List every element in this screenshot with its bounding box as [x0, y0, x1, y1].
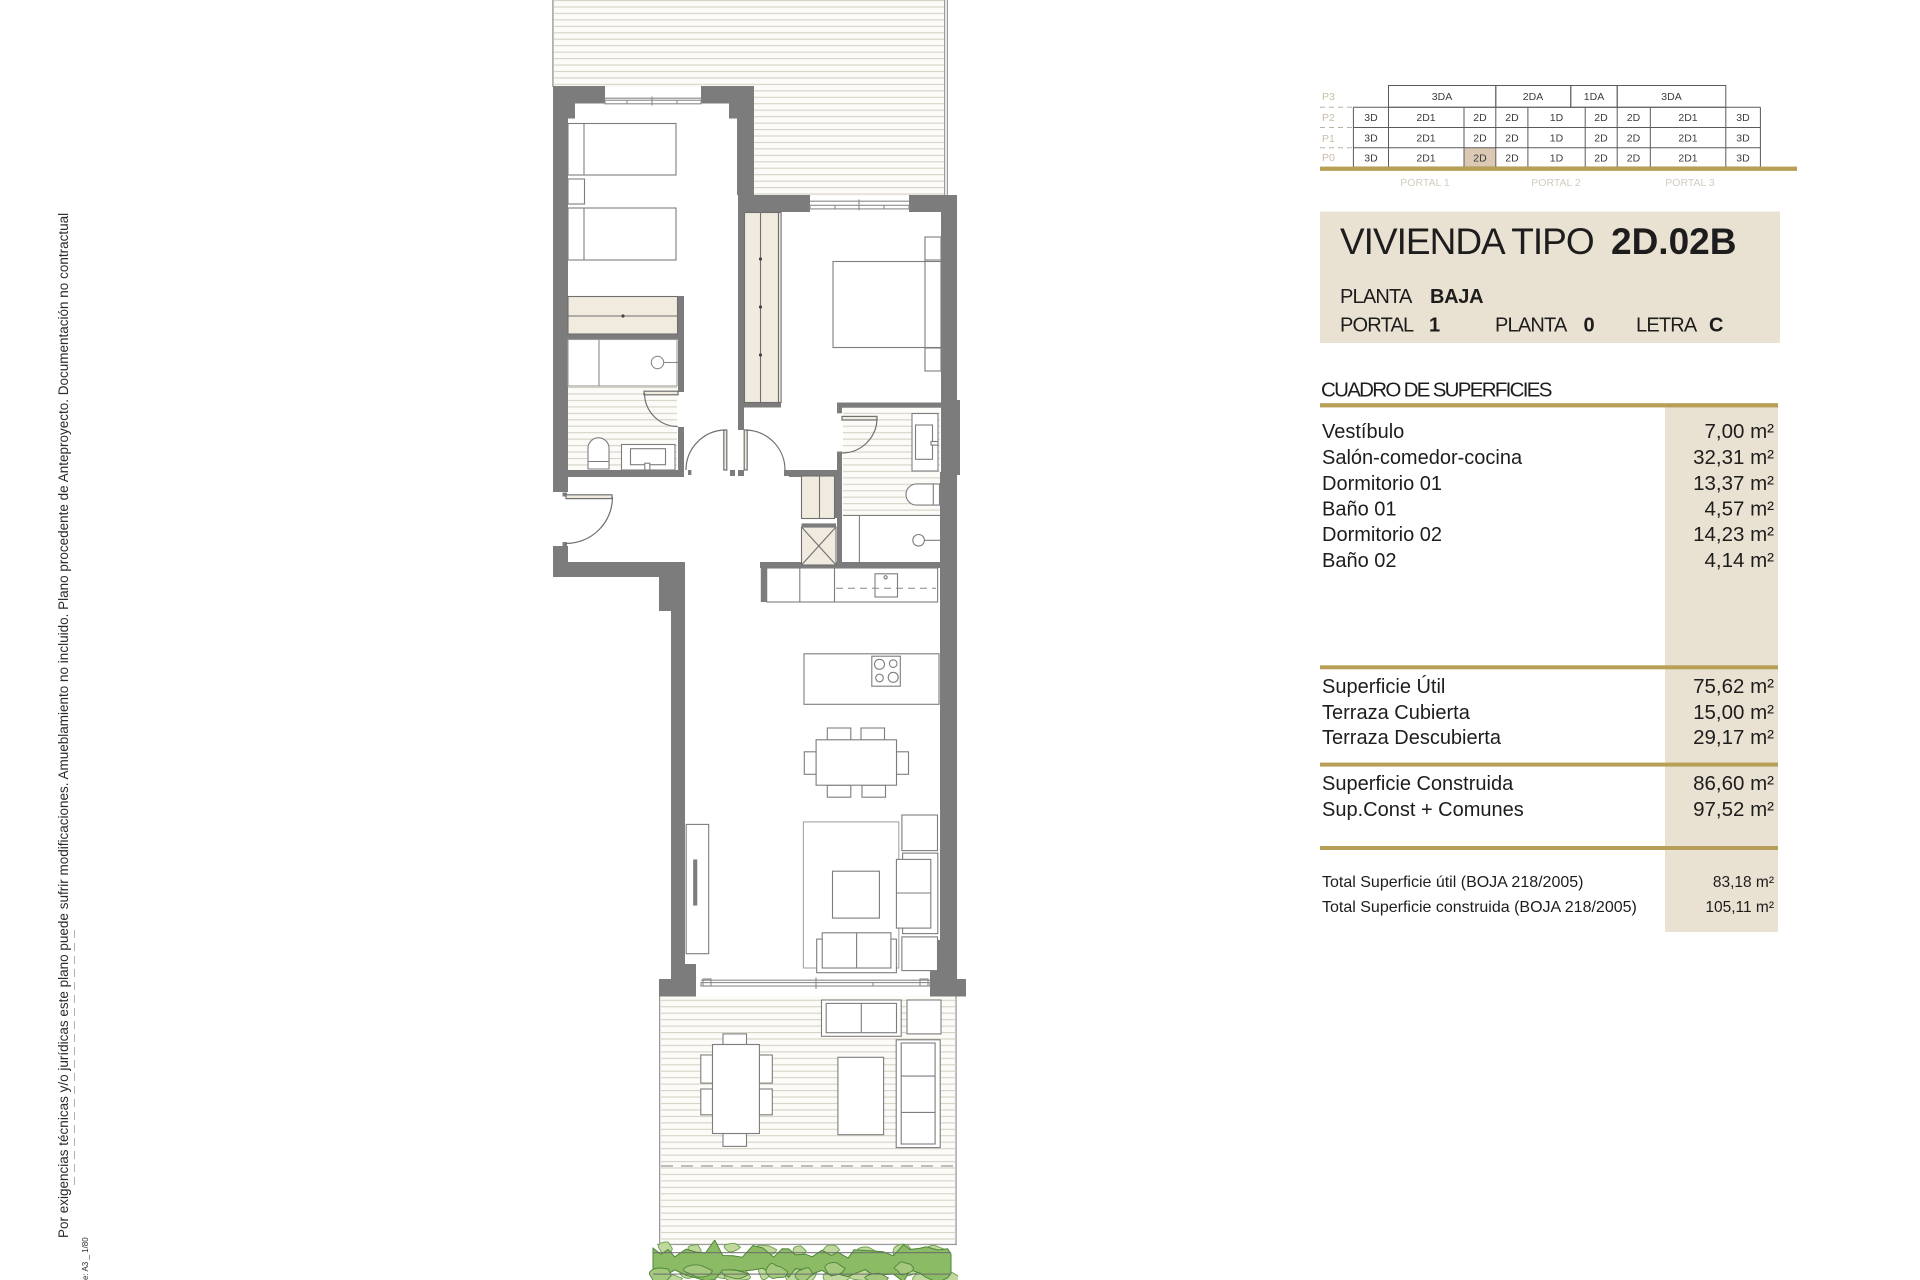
- svg-text:1D: 1D: [1550, 112, 1564, 124]
- svg-text:2D1: 2D1: [1678, 133, 1697, 145]
- svg-text:2D: 2D: [1594, 133, 1608, 145]
- svg-text:3D: 3D: [1364, 133, 1378, 145]
- svg-text:2D: 2D: [1473, 153, 1487, 165]
- svg-text:2D: 2D: [1627, 133, 1641, 145]
- svg-text:2D: 2D: [1627, 112, 1641, 124]
- svg-text:2D: 2D: [1505, 153, 1519, 165]
- svg-text:32,31 m²: 32,31 m²: [1693, 446, 1774, 469]
- svg-text:2D1: 2D1: [1678, 112, 1697, 124]
- svg-text:Terraza Descubierta: Terraza Descubierta: [1322, 727, 1502, 749]
- svg-text:3D: 3D: [1736, 153, 1750, 165]
- svg-text:1DA: 1DA: [1584, 91, 1604, 103]
- svg-text:Vestíbulo: Vestíbulo: [1322, 421, 1404, 443]
- svg-text:2D: 2D: [1505, 133, 1519, 145]
- svg-text:2D: 2D: [1594, 112, 1608, 124]
- svg-text:Superficie Útil: Superficie Útil: [1322, 675, 1445, 698]
- svg-text:14,23 m²: 14,23 m²: [1693, 523, 1774, 546]
- svg-text:2D: 2D: [1594, 153, 1608, 165]
- svg-text:2D: 2D: [1473, 133, 1487, 145]
- svg-text:PLANTA: PLANTA: [1495, 315, 1568, 337]
- svg-text:1D: 1D: [1550, 153, 1564, 165]
- svg-text:3DA: 3DA: [1432, 91, 1452, 103]
- svg-text:2D1: 2D1: [1416, 112, 1435, 124]
- svg-text:3D: 3D: [1364, 153, 1378, 165]
- svg-text:2D: 2D: [1505, 112, 1519, 124]
- svg-text:29,17 m²: 29,17 m²: [1693, 726, 1774, 749]
- svg-text:3D: 3D: [1736, 133, 1750, 145]
- svg-text:PLANTA: PLANTA: [1340, 286, 1413, 308]
- svg-text:Sup.Const + Comunes: Sup.Const + Comunes: [1322, 799, 1524, 821]
- svg-text:Baño 01: Baño 01: [1322, 499, 1397, 521]
- svg-text:Por exigencias técnicas y/o ju: Por exigencias técnicas y/o jurídicas es…: [56, 213, 71, 1238]
- svg-text:3D: 3D: [1364, 112, 1378, 124]
- svg-text:4,14 m²: 4,14 m²: [1705, 549, 1775, 572]
- svg-text:15,00 m²: 15,00 m²: [1693, 701, 1774, 724]
- svg-text:PORTAL 3: PORTAL 3: [1665, 177, 1715, 189]
- svg-text:e: A3 _ 1/80: e: A3 _ 1/80: [81, 1237, 90, 1280]
- svg-text:Total Superficie útil (BOJA 21: Total Superficie útil (BOJA 218/2005): [1322, 874, 1583, 891]
- svg-text:PORTAL 2: PORTAL 2: [1531, 177, 1581, 189]
- svg-text:C: C: [1709, 315, 1723, 337]
- svg-text:0: 0: [1584, 315, 1595, 337]
- svg-text:PORTAL: PORTAL: [1340, 315, 1414, 337]
- svg-text:4,57 m²: 4,57 m²: [1705, 498, 1775, 521]
- svg-text:Terraza Cubierta: Terraza Cubierta: [1322, 702, 1471, 724]
- svg-text:2D1: 2D1: [1416, 153, 1435, 165]
- svg-text:1: 1: [1429, 315, 1440, 337]
- svg-text:P3: P3: [1322, 91, 1335, 103]
- svg-text:3D: 3D: [1736, 112, 1750, 124]
- svg-text:Total Superficie construida (B: Total Superficie construida (BOJA 218/20…: [1322, 899, 1637, 916]
- svg-text:P1: P1: [1322, 133, 1335, 145]
- svg-text:1D: 1D: [1550, 133, 1564, 145]
- svg-text:LETRA: LETRA: [1636, 315, 1698, 337]
- svg-text:2D: 2D: [1473, 112, 1487, 124]
- svg-text:97,52 m²: 97,52 m²: [1693, 798, 1774, 821]
- svg-text:PORTAL 1: PORTAL 1: [1400, 177, 1450, 189]
- svg-text:BAJA: BAJA: [1430, 286, 1483, 308]
- svg-text:Dormitorio 02: Dormitorio 02: [1322, 524, 1442, 546]
- svg-text:2D.02B: 2D.02B: [1611, 221, 1736, 262]
- svg-text:2D1: 2D1: [1678, 153, 1697, 165]
- svg-text:2D1: 2D1: [1416, 133, 1435, 145]
- svg-text:CUADRO DE SUPERFICIES: CUADRO DE SUPERFICIES: [1321, 379, 1552, 402]
- svg-text:2D: 2D: [1627, 153, 1641, 165]
- svg-text:Salón-comedor-cocina: Salón-comedor-cocina: [1322, 447, 1523, 469]
- svg-text:105,11 m²: 105,11 m²: [1705, 899, 1774, 916]
- svg-text:86,60 m²: 86,60 m²: [1693, 772, 1774, 795]
- svg-text:83,18 m²: 83,18 m²: [1713, 874, 1774, 891]
- svg-text:7,00 m²: 7,00 m²: [1705, 420, 1775, 443]
- svg-text:Dormitorio 01: Dormitorio 01: [1322, 473, 1442, 495]
- svg-text:Baño 02: Baño 02: [1322, 550, 1397, 572]
- svg-text:75,62 m²: 75,62 m²: [1693, 675, 1774, 698]
- svg-text:13,37 m²: 13,37 m²: [1693, 472, 1774, 495]
- svg-text:2DA: 2DA: [1523, 91, 1543, 103]
- svg-text:P2: P2: [1322, 112, 1335, 124]
- svg-text:3DA: 3DA: [1661, 91, 1681, 103]
- svg-text:VIVIENDA TIPO: VIVIENDA TIPO: [1340, 221, 1594, 262]
- svg-text:Superficie Construida: Superficie Construida: [1322, 773, 1514, 795]
- svg-text:P0: P0: [1322, 152, 1335, 164]
